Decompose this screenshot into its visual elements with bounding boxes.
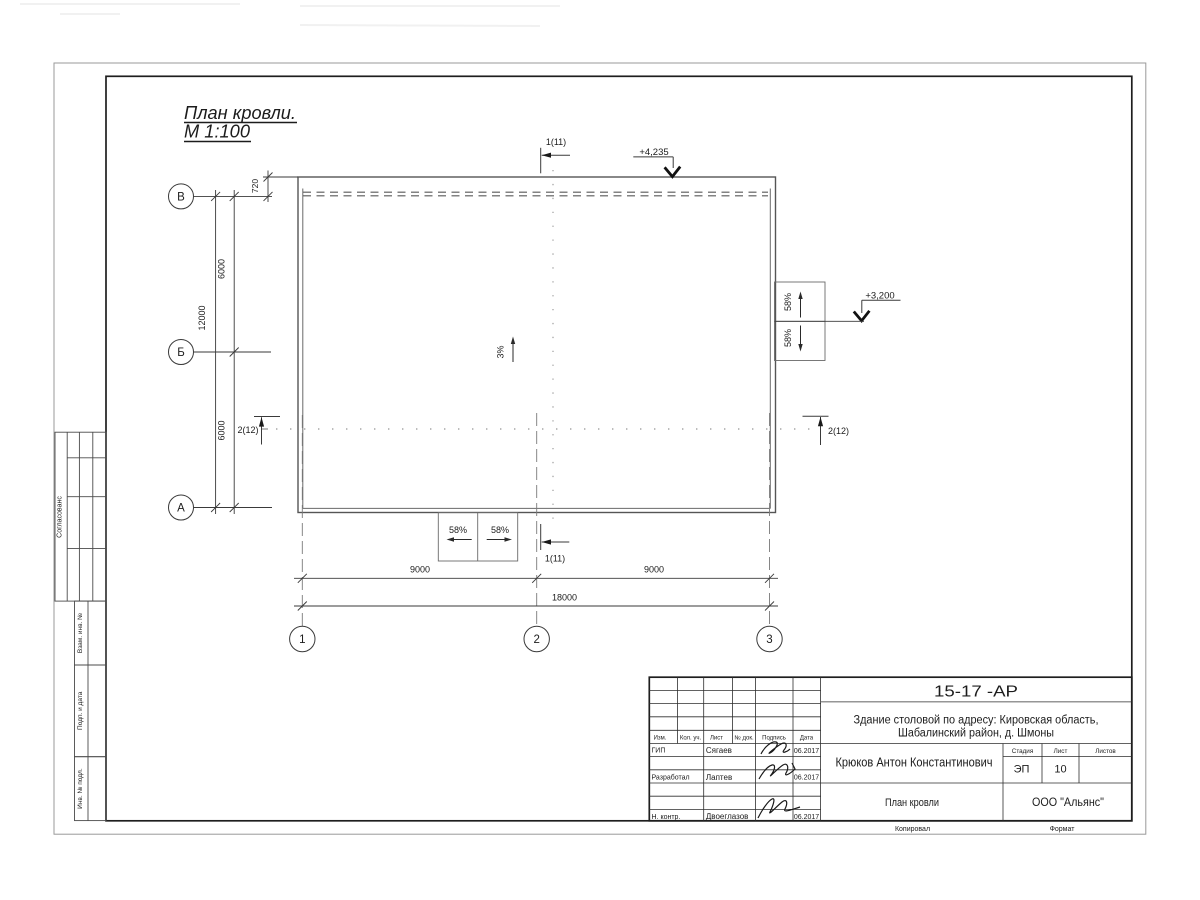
svg-text:Согласованс: Согласованс	[57, 496, 64, 538]
svg-text:6000: 6000	[217, 259, 227, 279]
svg-text:М 1:100: М 1:100	[184, 121, 251, 142]
svg-text:Сягаев: Сягаев	[706, 746, 732, 755]
svg-text:План кровли: План кровли	[885, 797, 939, 809]
svg-text:Н. контр.: Н. контр.	[652, 814, 681, 821]
svg-text:10: 10	[1054, 764, 1066, 776]
svg-text:Инв. № подл.: Инв. № подл.	[77, 768, 84, 809]
svg-text:ЭП: ЭП	[1014, 764, 1030, 776]
svg-text:12000: 12000	[197, 305, 207, 330]
svg-text:Копировал: Копировал	[895, 826, 930, 833]
svg-text:ООО "Альянс": ООО "Альянс"	[1032, 797, 1104, 809]
svg-text:1(11): 1(11)	[546, 137, 566, 147]
svg-text:№ док.: № док.	[734, 734, 754, 741]
svg-text:Листов: Листов	[1095, 748, 1116, 755]
svg-text:58%: 58%	[783, 293, 793, 311]
svg-text:Здание столовой по адресу: Кир: Здание столовой по адресу: Кировская обл…	[854, 715, 1099, 727]
svg-text:Взам. инв. №: Взам. инв. №	[77, 613, 84, 653]
svg-text:3: 3	[766, 634, 772, 646]
svg-text:2: 2	[533, 634, 539, 646]
svg-text:58%: 58%	[783, 329, 793, 347]
svg-text:В: В	[177, 192, 185, 204]
svg-text:1: 1	[299, 634, 305, 646]
svg-text:2(12): 2(12)	[237, 425, 258, 435]
svg-text:Б: Б	[177, 347, 185, 359]
svg-text:58%: 58%	[491, 525, 509, 535]
svg-text:Дата: Дата	[800, 735, 814, 741]
svg-text:6000: 6000	[217, 420, 227, 440]
svg-text:А: А	[177, 503, 185, 515]
svg-text:15-17 -АР: 15-17 -АР	[934, 684, 1018, 701]
svg-text:18000: 18000	[552, 593, 577, 603]
svg-text:Лист: Лист	[710, 735, 723, 741]
svg-text:06.2017: 06.2017	[794, 814, 819, 821]
svg-text:Шабалинский район, д. Шмоны: Шабалинский район, д. Шмоны	[898, 728, 1054, 740]
svg-text:ГИП: ГИП	[652, 748, 666, 755]
svg-text:Формат: Формат	[1050, 826, 1076, 833]
svg-text:Разработал: Разработал	[652, 774, 690, 782]
svg-text:Двоеглазов: Двоеглазов	[706, 812, 749, 821]
svg-text:720: 720	[250, 179, 260, 193]
svg-text:06.2017: 06.2017	[794, 748, 819, 755]
svg-text:Кол. уч.: Кол. уч.	[680, 735, 702, 741]
svg-text:9000: 9000	[644, 565, 664, 575]
svg-text:+4,235: +4,235	[639, 147, 668, 158]
svg-text:06.2017: 06.2017	[794, 775, 819, 782]
svg-text:2(12): 2(12)	[828, 426, 849, 436]
svg-text:Изм.: Изм.	[654, 735, 667, 741]
svg-text:Подп. и дата: Подп. и дата	[77, 691, 84, 730]
svg-text:58%: 58%	[449, 525, 467, 535]
svg-text:Лаптев: Лаптев	[706, 773, 732, 782]
svg-text:9000: 9000	[410, 565, 430, 575]
svg-text:3%: 3%	[496, 345, 506, 358]
svg-text:Крюков Антон Константинович: Крюков Антон Константинович	[836, 756, 993, 770]
svg-text:+3,200: +3,200	[865, 290, 894, 301]
svg-text:1(11): 1(11)	[545, 554, 565, 564]
svg-text:Стадия: Стадия	[1012, 748, 1033, 755]
svg-text:Лист: Лист	[1054, 748, 1068, 755]
svg-text:Подпись: Подпись	[762, 735, 786, 741]
